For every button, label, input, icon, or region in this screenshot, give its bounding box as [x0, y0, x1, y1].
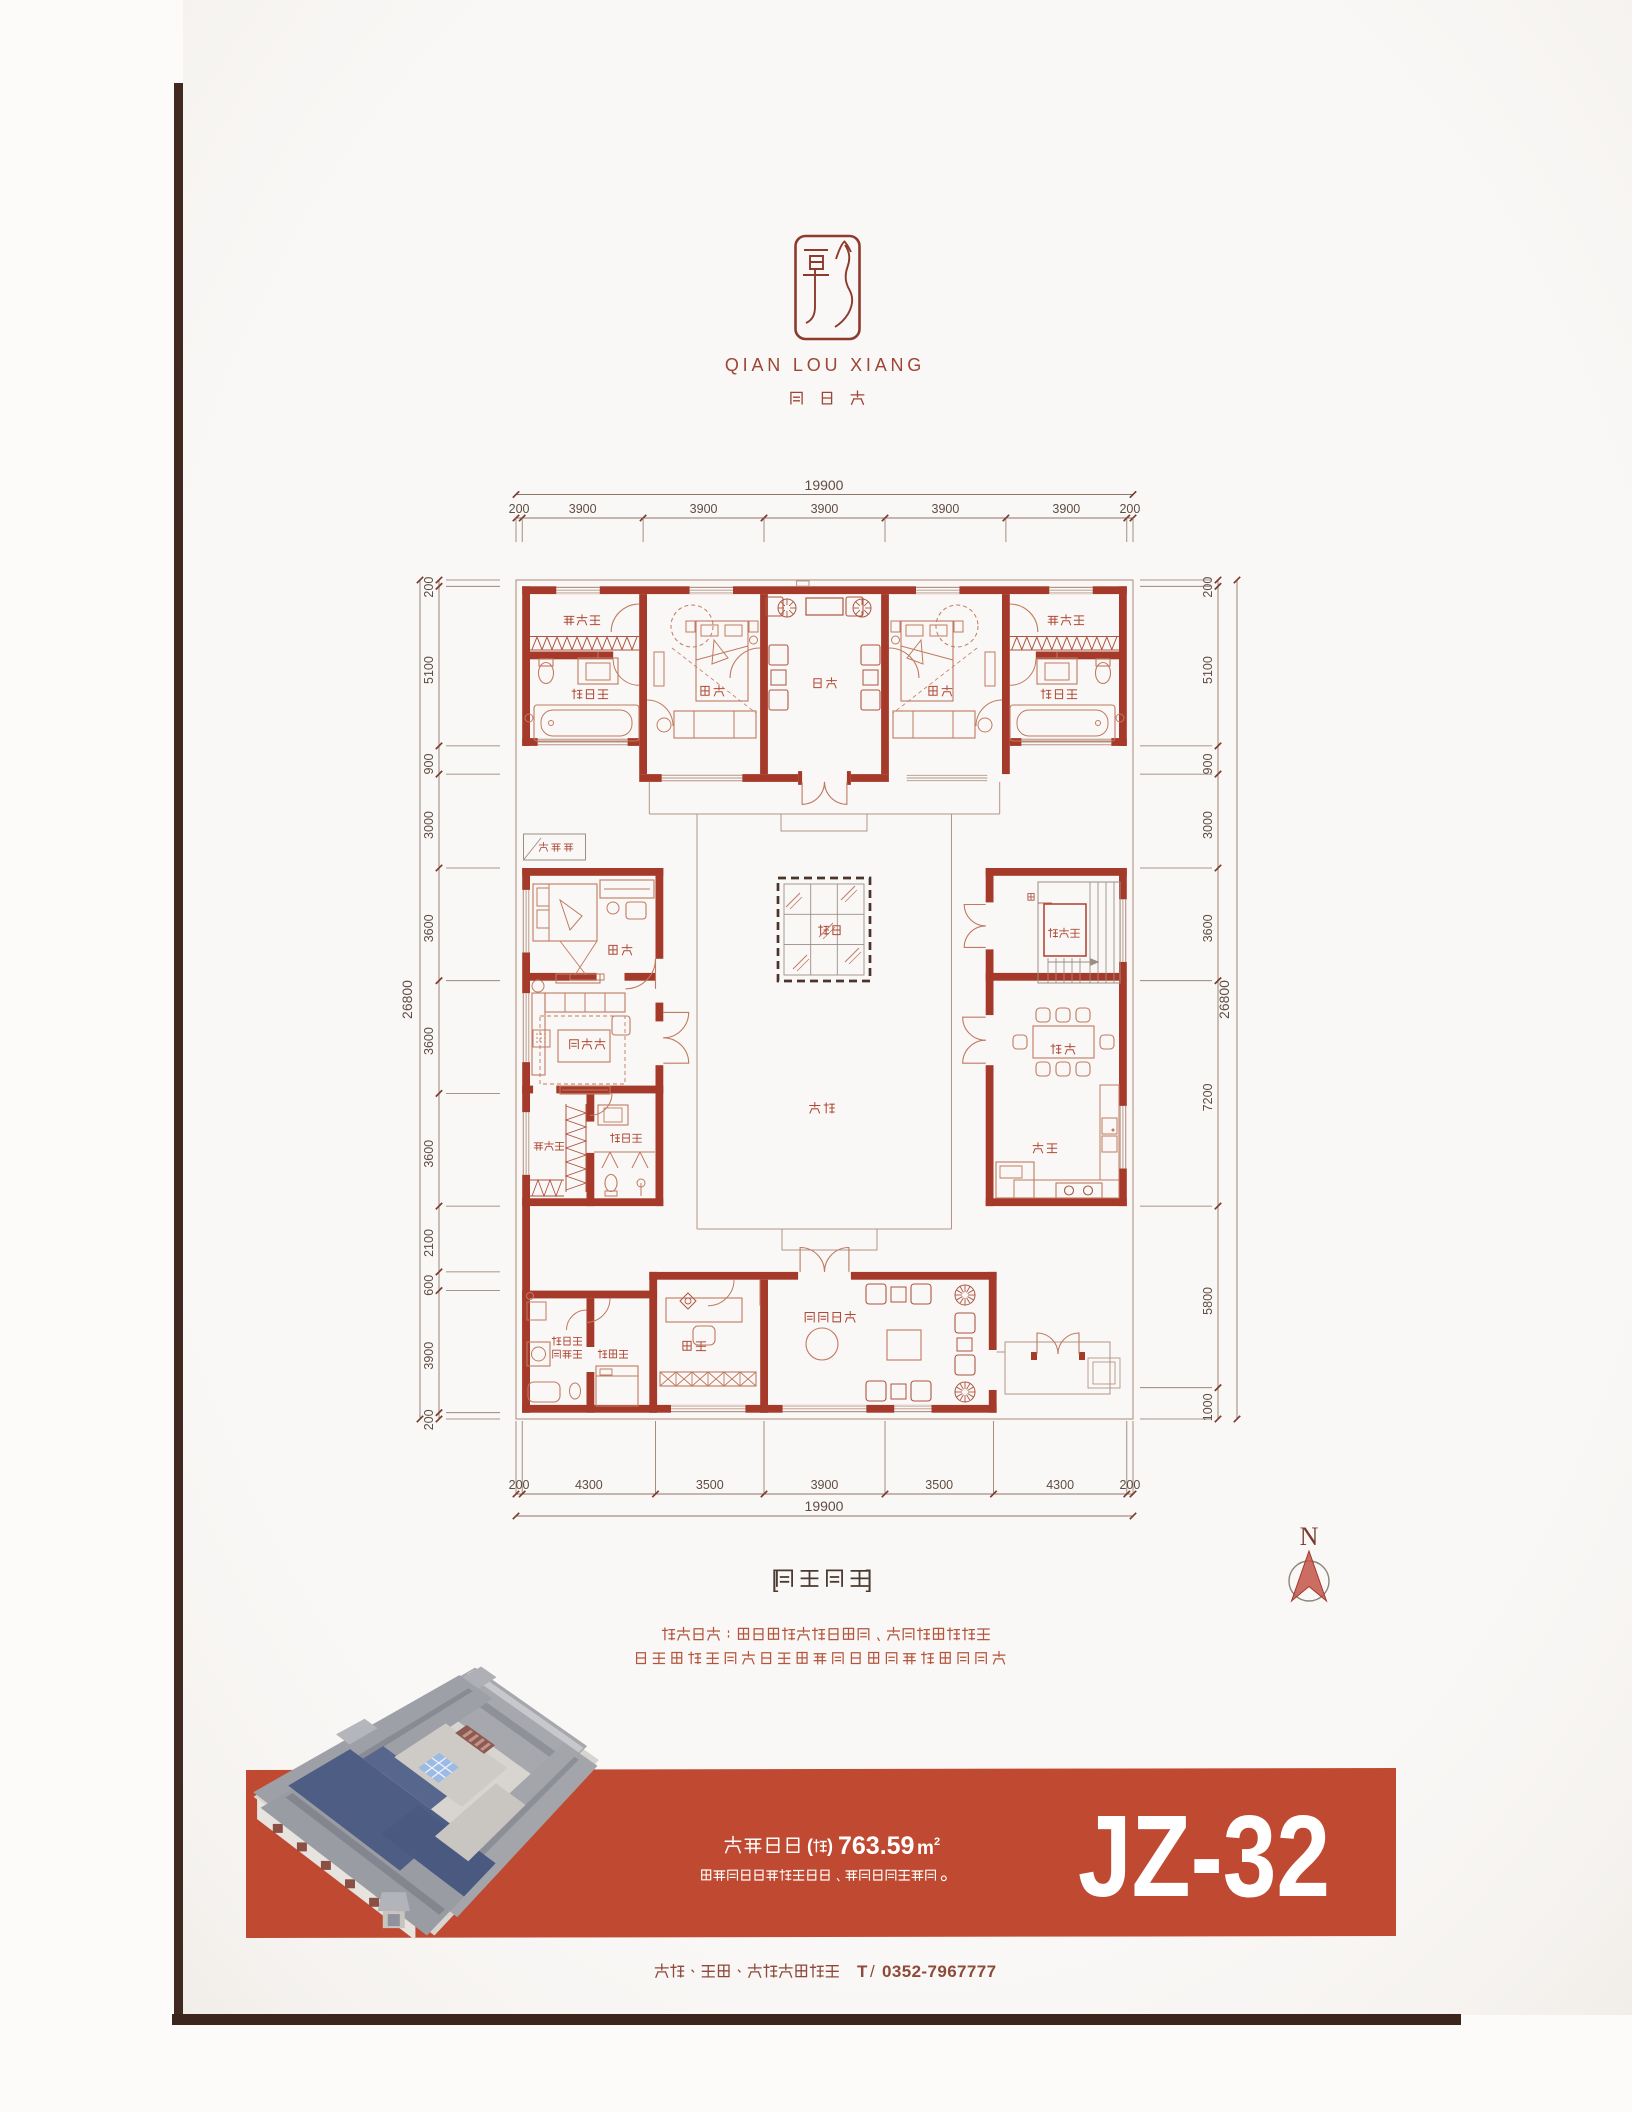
- svg-text:3500: 3500: [696, 1478, 724, 1492]
- svg-text:200: 200: [509, 502, 530, 516]
- svg-text:900: 900: [422, 754, 436, 775]
- svg-text:26800: 26800: [1216, 980, 1232, 1019]
- svg-text:3900: 3900: [932, 502, 960, 516]
- svg-text:m: m: [917, 1838, 934, 1859]
- svg-text:3500: 3500: [925, 1478, 953, 1492]
- svg-text:1000: 1000: [1201, 1393, 1215, 1421]
- svg-text:N: N: [1300, 1522, 1319, 1551]
- svg-text:3000: 3000: [422, 811, 436, 839]
- svg-text:3900: 3900: [1052, 502, 1080, 516]
- svg-text:200: 200: [509, 1478, 530, 1492]
- svg-text:763.59: 763.59: [838, 1832, 914, 1860]
- svg-text:0352-7967777: 0352-7967777: [882, 1962, 996, 1981]
- svg-text:600: 600: [422, 1275, 436, 1296]
- svg-text:3900: 3900: [690, 502, 718, 516]
- svg-text:3900: 3900: [422, 1342, 436, 1370]
- svg-text:3600: 3600: [422, 914, 436, 942]
- svg-text:3600: 3600: [422, 1027, 436, 1055]
- svg-text:2: 2: [934, 1836, 940, 1848]
- svg-text:3600: 3600: [422, 1140, 436, 1168]
- svg-text:(: (: [807, 1836, 813, 1856]
- svg-text:): ): [827, 1836, 833, 1856]
- svg-text:200: 200: [1119, 502, 1140, 516]
- svg-text:200: 200: [1119, 1478, 1140, 1492]
- svg-text:T: T: [857, 1962, 868, 1981]
- svg-text:4300: 4300: [1046, 1478, 1074, 1492]
- svg-text:3600: 3600: [1201, 914, 1215, 942]
- svg-text:900: 900: [1201, 754, 1215, 775]
- svg-text:26800: 26800: [399, 980, 415, 1019]
- svg-text:3900: 3900: [811, 502, 839, 516]
- svg-text:19900: 19900: [805, 477, 844, 493]
- svg-text:3900: 3900: [811, 1478, 839, 1492]
- svg-text:3000: 3000: [1201, 811, 1215, 839]
- svg-text:QIAN LOU XIANG: QIAN LOU XIANG: [725, 355, 925, 375]
- svg-text:2100: 2100: [422, 1229, 436, 1257]
- svg-text:3900: 3900: [569, 502, 597, 516]
- svg-text:19900: 19900: [805, 1498, 844, 1514]
- svg-text:]: ]: [866, 1566, 873, 1593]
- svg-text:5100: 5100: [422, 656, 436, 684]
- svg-text:200: 200: [422, 1409, 436, 1430]
- svg-text:5800: 5800: [1201, 1287, 1215, 1315]
- svg-text:200: 200: [422, 577, 436, 598]
- svg-text:4300: 4300: [575, 1478, 603, 1492]
- svg-text:/: /: [870, 1962, 875, 1981]
- svg-text:7200: 7200: [1201, 1083, 1215, 1111]
- svg-text:5100: 5100: [1201, 656, 1215, 684]
- svg-text:JZ-32: JZ-32: [1078, 1791, 1330, 1921]
